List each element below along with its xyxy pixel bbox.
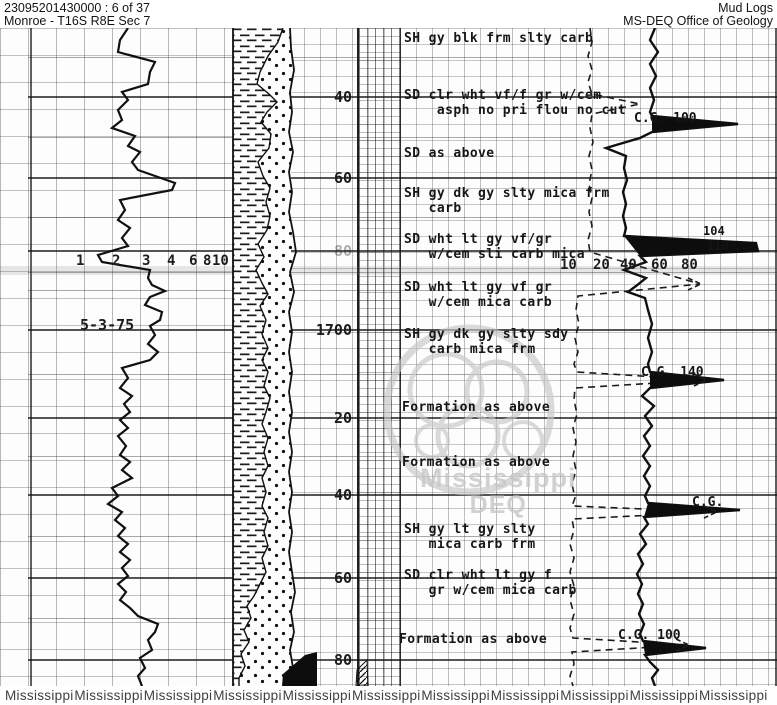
minor-grid-line [28,536,777,537]
depth-grid-line [28,417,777,419]
left-curve-track [0,28,233,686]
formation-description: SD clr wht lt gy f gr w/cem mica carb [404,568,577,598]
header-right-block: Mud Logs MS-DEQ Office of Geology [623,2,773,28]
footer-watermark-word: Mississippi [699,688,768,703]
left-scale-number: 6 [189,253,197,269]
gas-reading-label: C.G. 100 [634,111,697,126]
depth-grid-line [28,494,777,496]
depth-ruler-strip [357,28,401,686]
right-scale-number: 40 [620,257,637,273]
depth-grid-line [28,96,777,98]
depth-label: 60 [296,569,352,587]
formation-description: SH gy dk gy slty sdy carb mica frm [404,327,569,357]
depth-label: 40 [296,486,352,504]
depth-label: 1700 [296,321,352,339]
depth-grid-line [28,250,777,252]
vertical-rule [775,28,777,686]
right-scale-number: 60 [651,257,668,273]
footer-watermark-row: MississippiMississippiMississippiMississ… [0,686,777,705]
page-header: 23095201430000 : 6 of 37 Monroe - T16S R… [0,0,777,28]
formation-description: SD wht lt gy vf gr w/cem mica carb [404,280,552,310]
vertical-rule [30,28,32,686]
minor-grid-line [28,618,777,619]
gas-reading-label: 110 [707,239,729,253]
formation-description: Formation as above [399,632,547,647]
left-scale-number: 2 [112,253,120,269]
footer-watermark-word: Mississippi [213,688,282,703]
footer-watermark-word: Mississippi [421,688,490,703]
depth-label: 40 [296,88,352,106]
depth-grid-line [28,659,777,661]
depth-grid-line [28,329,777,331]
gas-reading-label: C.G. [692,495,723,510]
formation-description: SD clr wht vf/f gr w/cem asph no pri flo… [404,88,626,118]
depth-label: 20 [296,409,352,427]
gas-reading-label: C.G. 100 [618,628,681,643]
depth-label: 60 [296,169,352,187]
right-scale-number: 20 [593,257,610,273]
gas-reading-label: C.G. 140 [641,365,704,380]
watermark-text: Mississippi DEQ [420,464,577,518]
date-annotation: 5-3-75 [80,316,134,334]
minor-grid-line [28,217,777,218]
formation-description: SD wht lt gy vf/gr w/cem sli carb mica [404,232,585,262]
header-left-block: 23095201430000 : 6 of 37 Monroe - T16S R… [4,2,150,28]
footer-watermark-word: Mississippi [630,688,699,703]
left-scale-number: 4 [167,253,175,269]
left-scale-number: 10 [212,253,229,269]
footer-watermark-word: Mississippi [144,688,213,703]
left-scale-number: 3 [142,253,150,269]
depth-label: 80 [296,242,352,260]
formation-description: Formation as above [402,400,550,415]
minor-grid-line [28,290,777,291]
right-scale-number: 10 [560,257,577,273]
footer-watermark-word: Mississippi [352,688,421,703]
formation-description: Formation as above [402,455,550,470]
formation-description: SH gy dk gy slty mica frm carb [404,186,610,216]
watermark-line2: DEQ [420,492,577,518]
footer-watermark-word: Mississippi [5,688,74,703]
minor-grid-line [28,137,777,138]
left-scale-number: 1 [76,253,84,269]
right-scale-number: 80 [681,257,698,273]
footer-watermark-word: Mississippi [74,688,143,703]
depth-grid-line [28,177,777,179]
gas-reading-label: 104 [703,224,725,238]
agency-name: MS-DEQ Office of Geology [623,15,773,28]
depth-grid-line [28,577,777,579]
formation-description: SH gy blk frm slty carb [404,31,593,46]
minor-grid-line [28,57,777,58]
left-scale-number: 8 [203,253,211,269]
formation-description: SD as above [404,146,495,161]
footer-watermark-word: Mississippi [491,688,560,703]
footer-watermark-word: Mississippi [560,688,629,703]
footer-watermark-word: Mississippi [283,688,352,703]
formation-description: SH gy lt gy slty mica carb frm [404,522,536,552]
well-location: Monroe - T16S R8E Sec 7 [4,15,150,28]
depth-label: 80 [296,651,352,669]
